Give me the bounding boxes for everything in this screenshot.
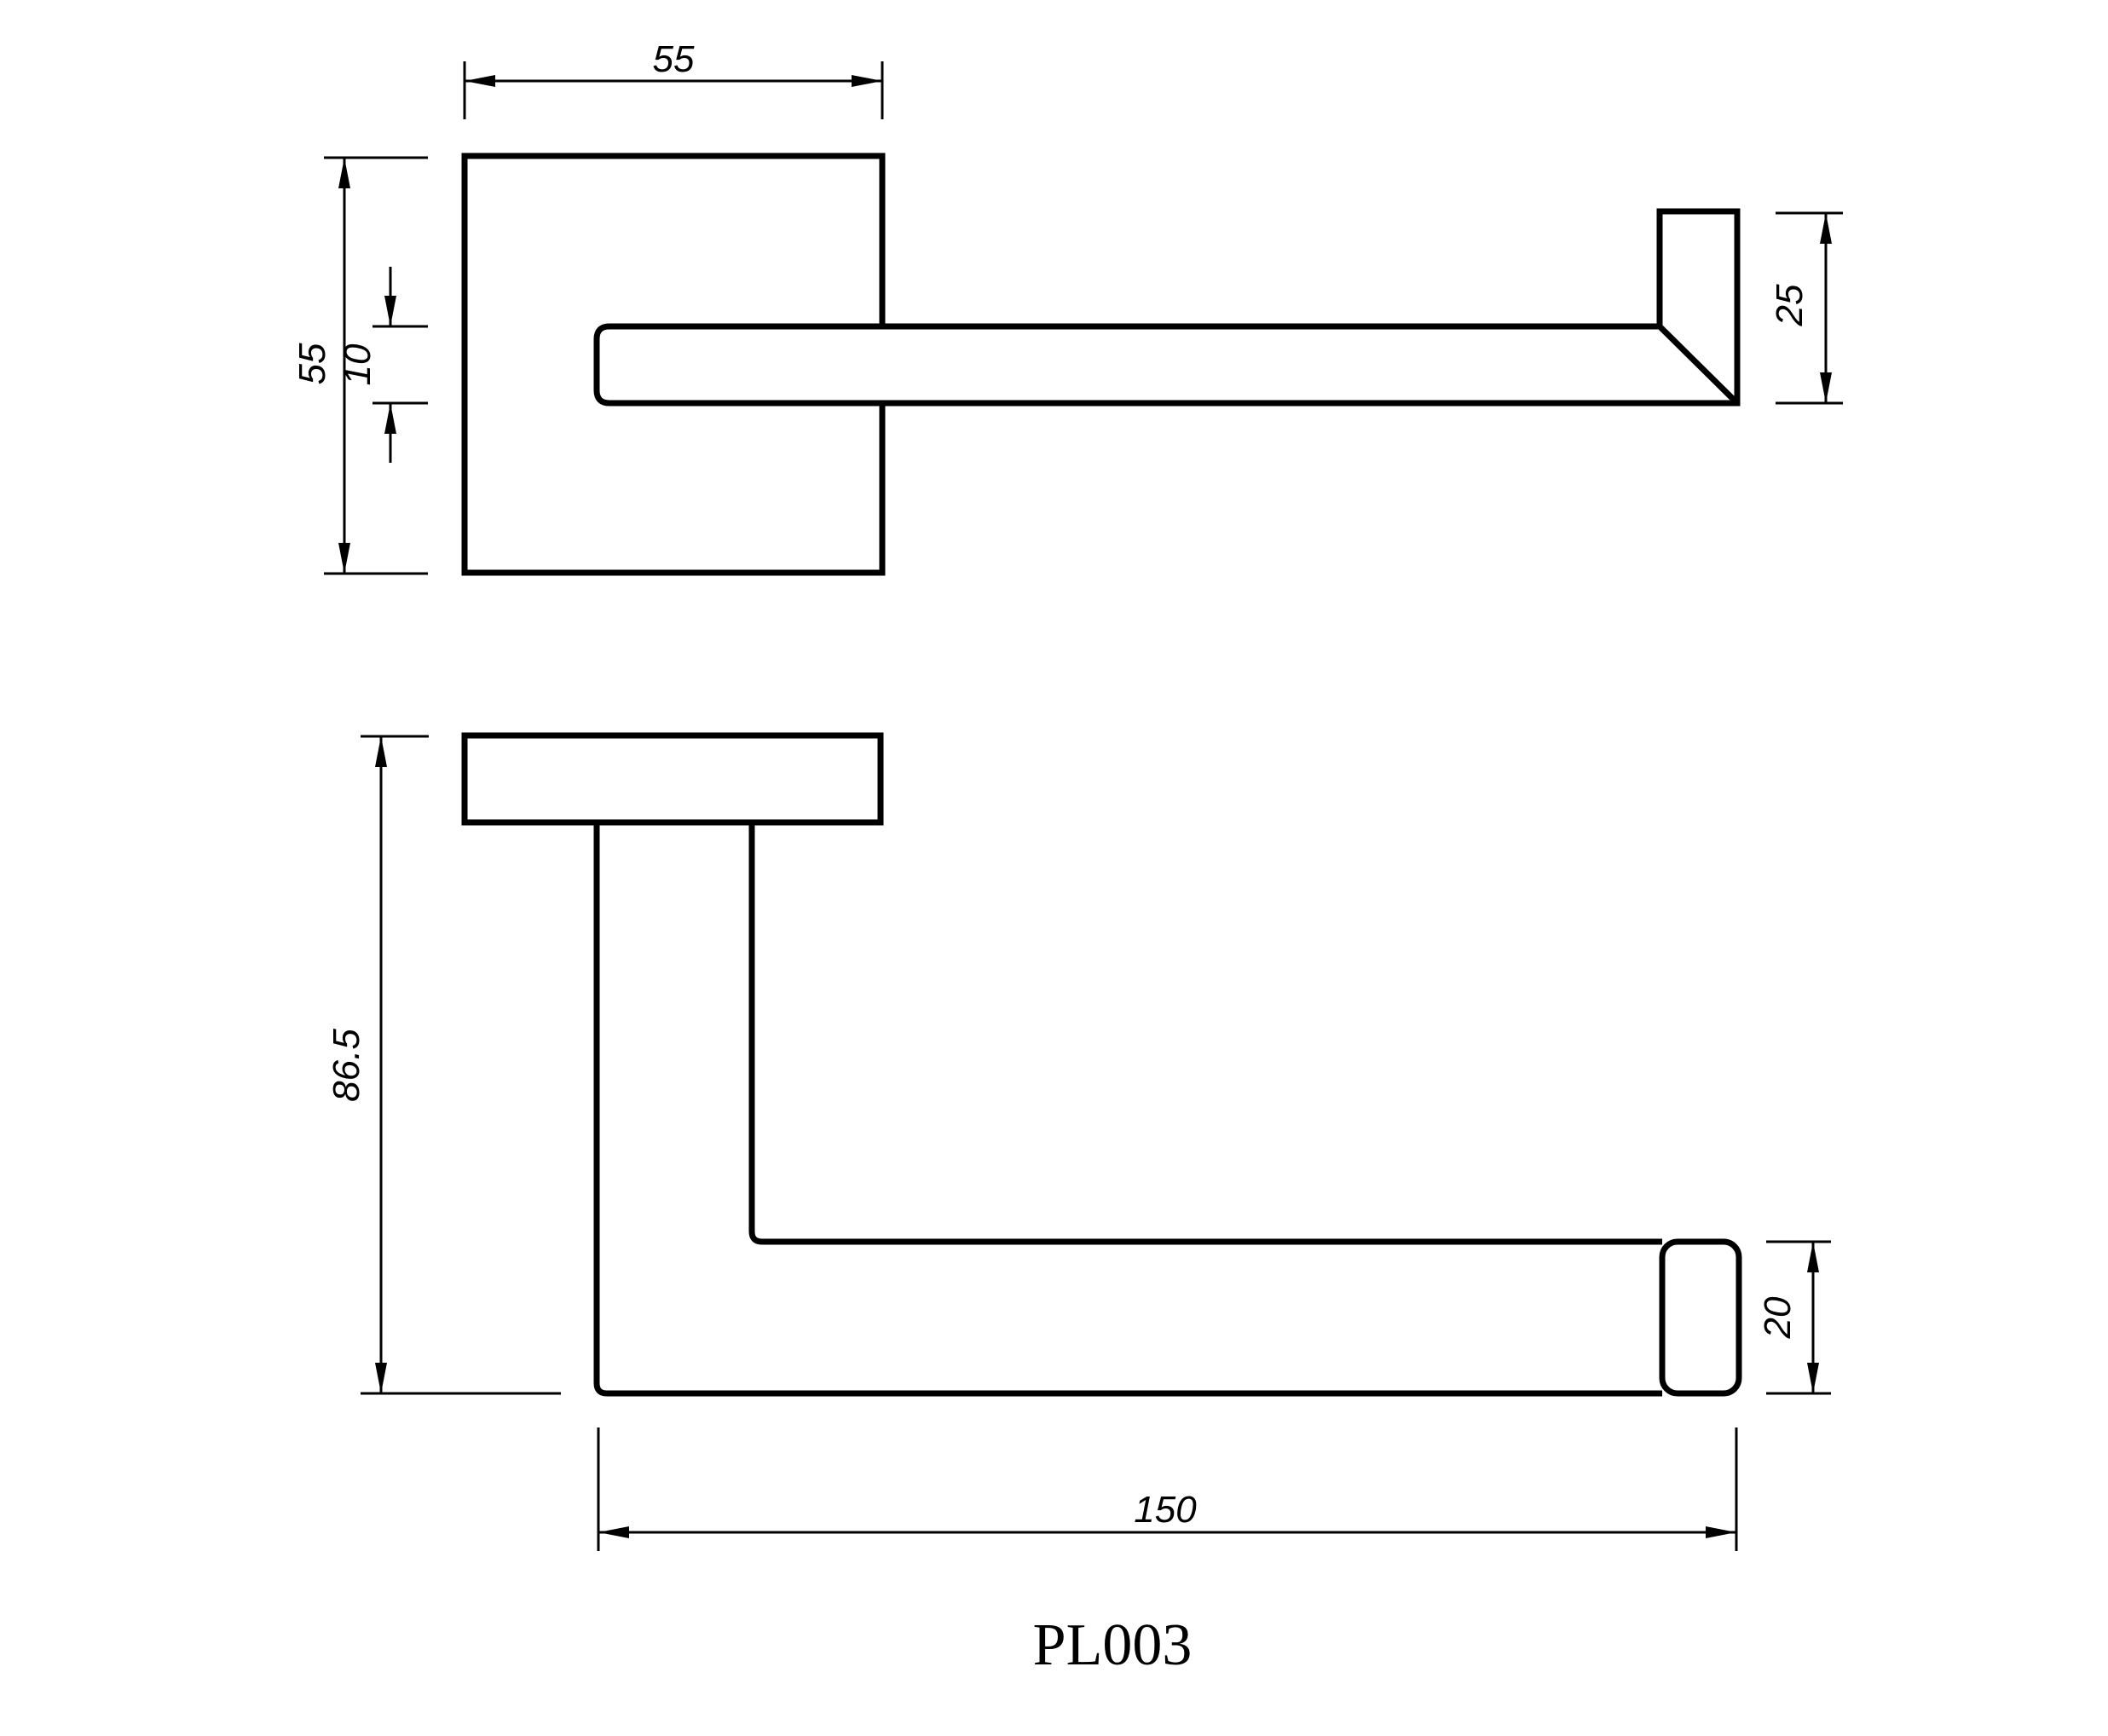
canvas-background [0,0,2108,1736]
dim-text: 86.5 [326,1029,367,1102]
engineering-drawing-page: 55 55 10 [0,0,2108,1736]
dim-text: 20 [1757,1296,1799,1339]
plate-outline-side [465,735,881,822]
drawing-canvas: 55 55 10 [0,0,2108,1736]
dim-text: 150 [1134,1489,1197,1531]
dim-text: 10 [337,343,378,385]
dim-text: 25 [1769,284,1811,326]
dim-text: 55 [653,38,695,80]
end-cap [1662,1242,1739,1393]
part-number-label: PL003 [1033,1612,1193,1678]
dim-text: 55 [292,343,333,384]
